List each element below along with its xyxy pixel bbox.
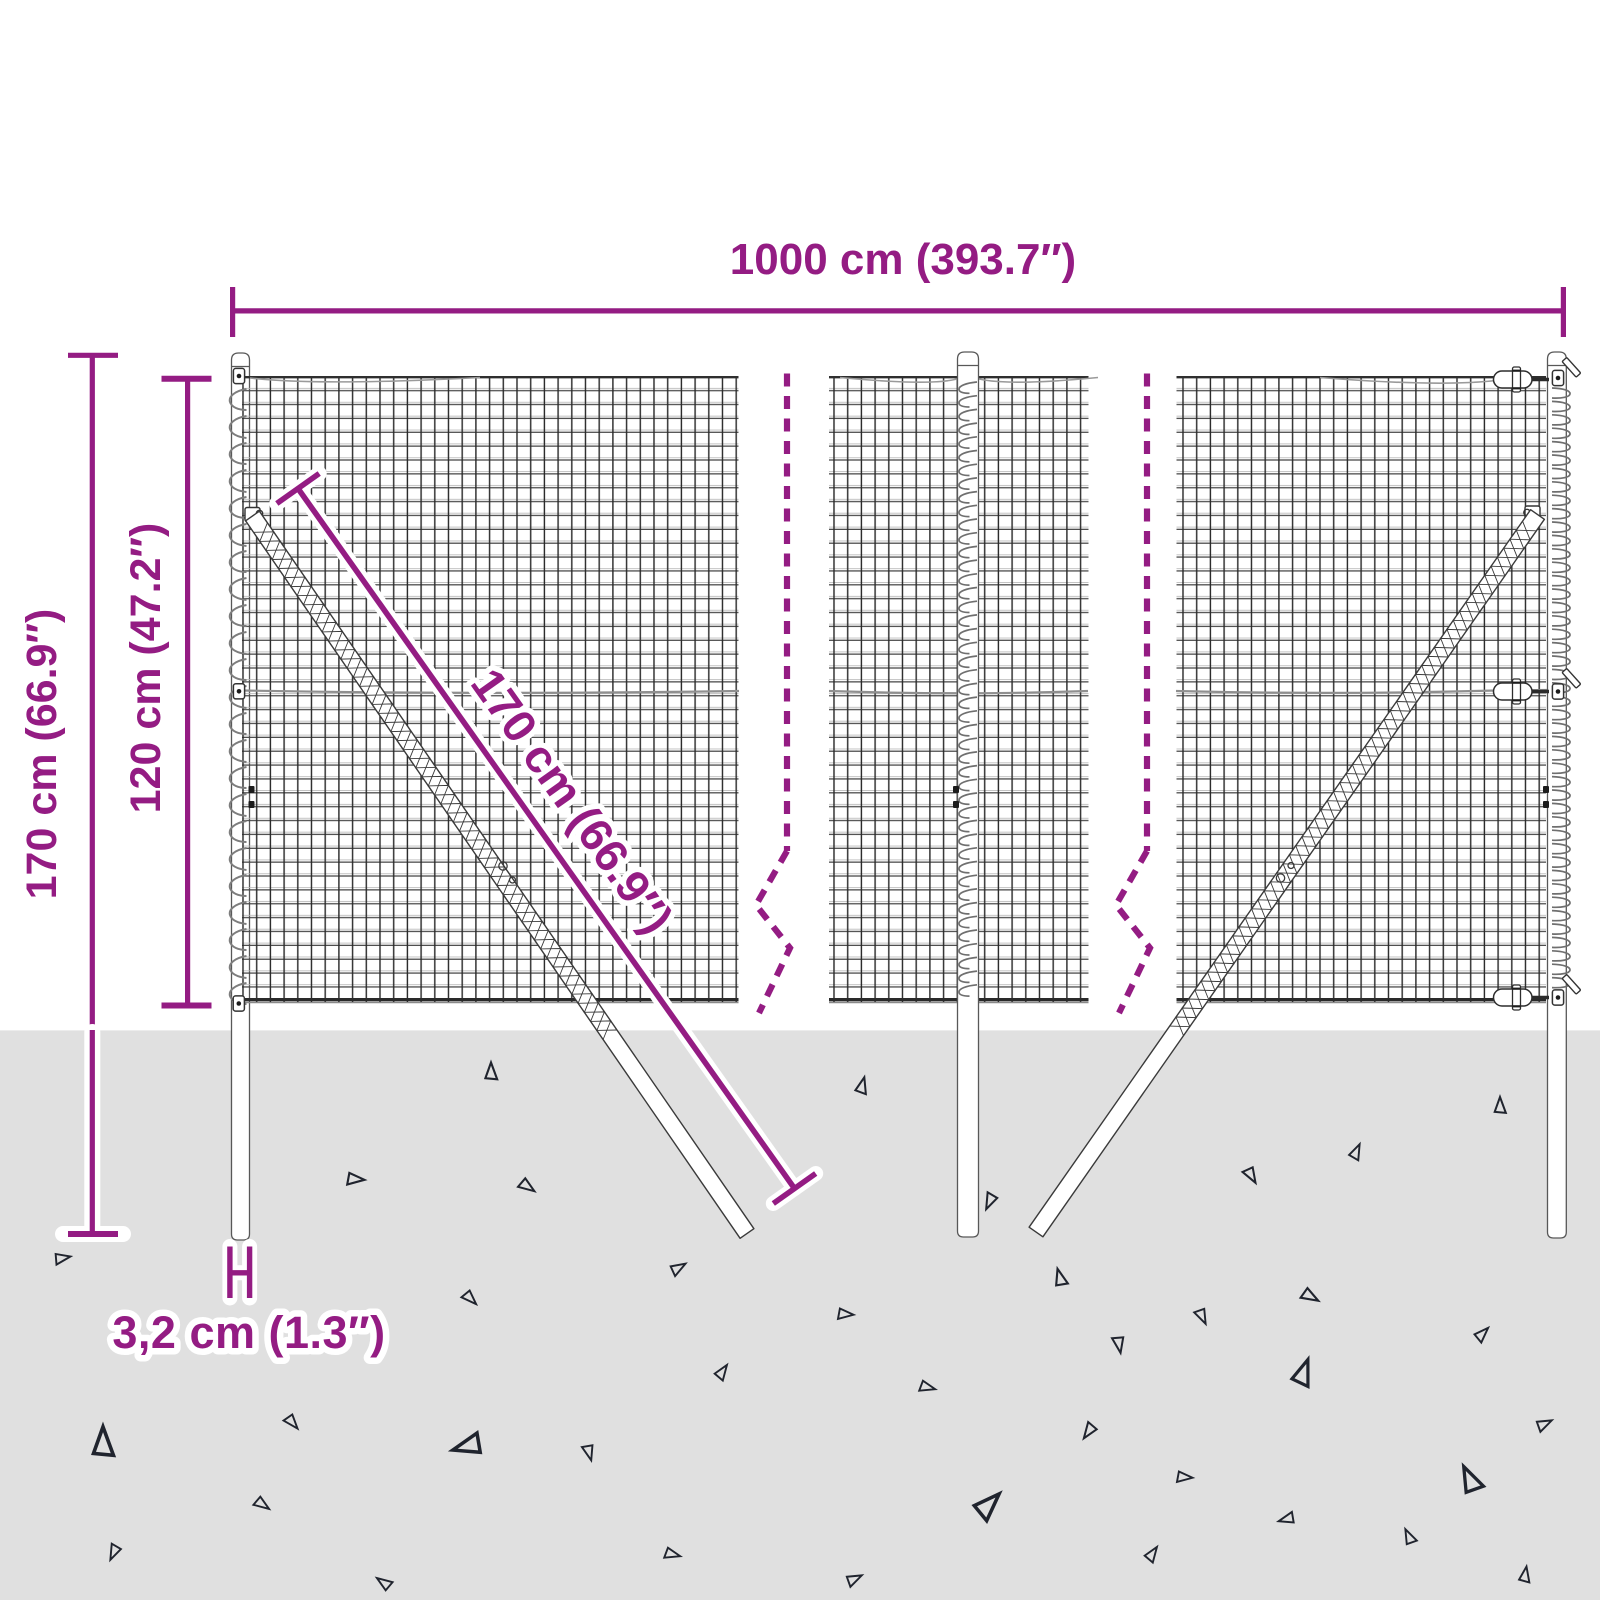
svg-text:1000 cm (393.7″): 1000 cm (393.7″) bbox=[730, 235, 1076, 284]
svg-text:170 cm (66.9″): 170 cm (66.9″) bbox=[18, 609, 66, 900]
svg-text:3,2 cm (1.3″): 3,2 cm (1.3″) bbox=[112, 1307, 385, 1358]
svg-text:120 cm (47.2″): 120 cm (47.2″) bbox=[122, 523, 170, 814]
